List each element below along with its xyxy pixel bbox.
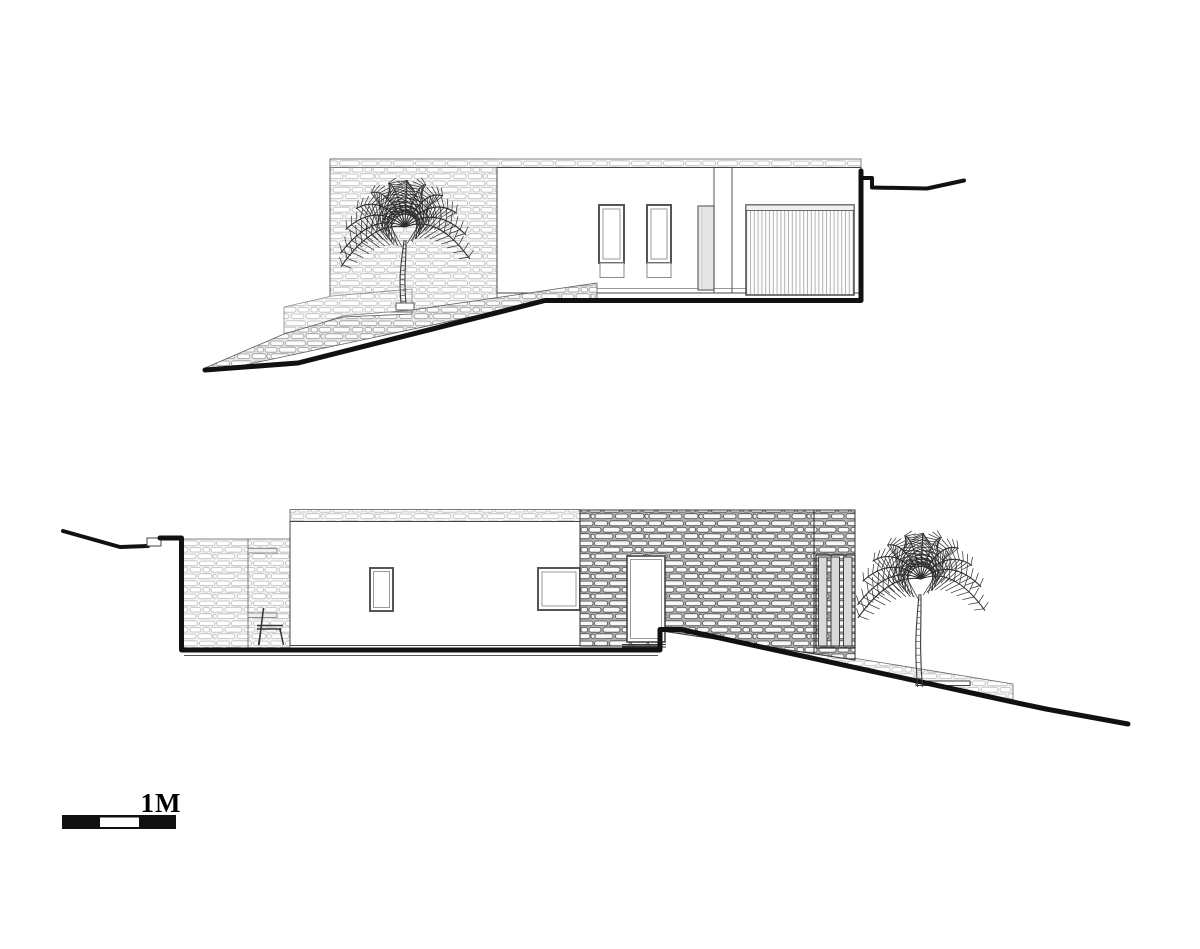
drawing-canvas: 1M	[0, 0, 1200, 949]
upper-palm-planter	[396, 303, 414, 310]
lower-window-large	[538, 568, 580, 610]
scale-bar-white-segment	[100, 818, 139, 828]
lower-elevation	[63, 510, 1128, 725]
lower-patio-stone-wall	[183, 539, 290, 648]
lower-ground-line-left	[63, 531, 148, 547]
lower-facade	[290, 522, 580, 646]
patio-shelf-upper	[248, 549, 277, 554]
scale-bar: 1M	[62, 788, 181, 829]
lower-parapet-stone-band	[290, 510, 580, 522]
upper-ground-line-right	[862, 178, 964, 189]
upper-elevation	[205, 159, 964, 371]
upper-window-2	[647, 205, 671, 278]
lower-window-small	[370, 568, 393, 611]
upper-garage-door	[746, 205, 854, 295]
upper-roof-stone-band	[330, 159, 861, 168]
upper-entry-glazing	[698, 206, 714, 290]
scale-bar-label: 1M	[141, 788, 182, 818]
lower-slat-screen	[816, 555, 855, 648]
upper-window-1	[599, 205, 624, 278]
